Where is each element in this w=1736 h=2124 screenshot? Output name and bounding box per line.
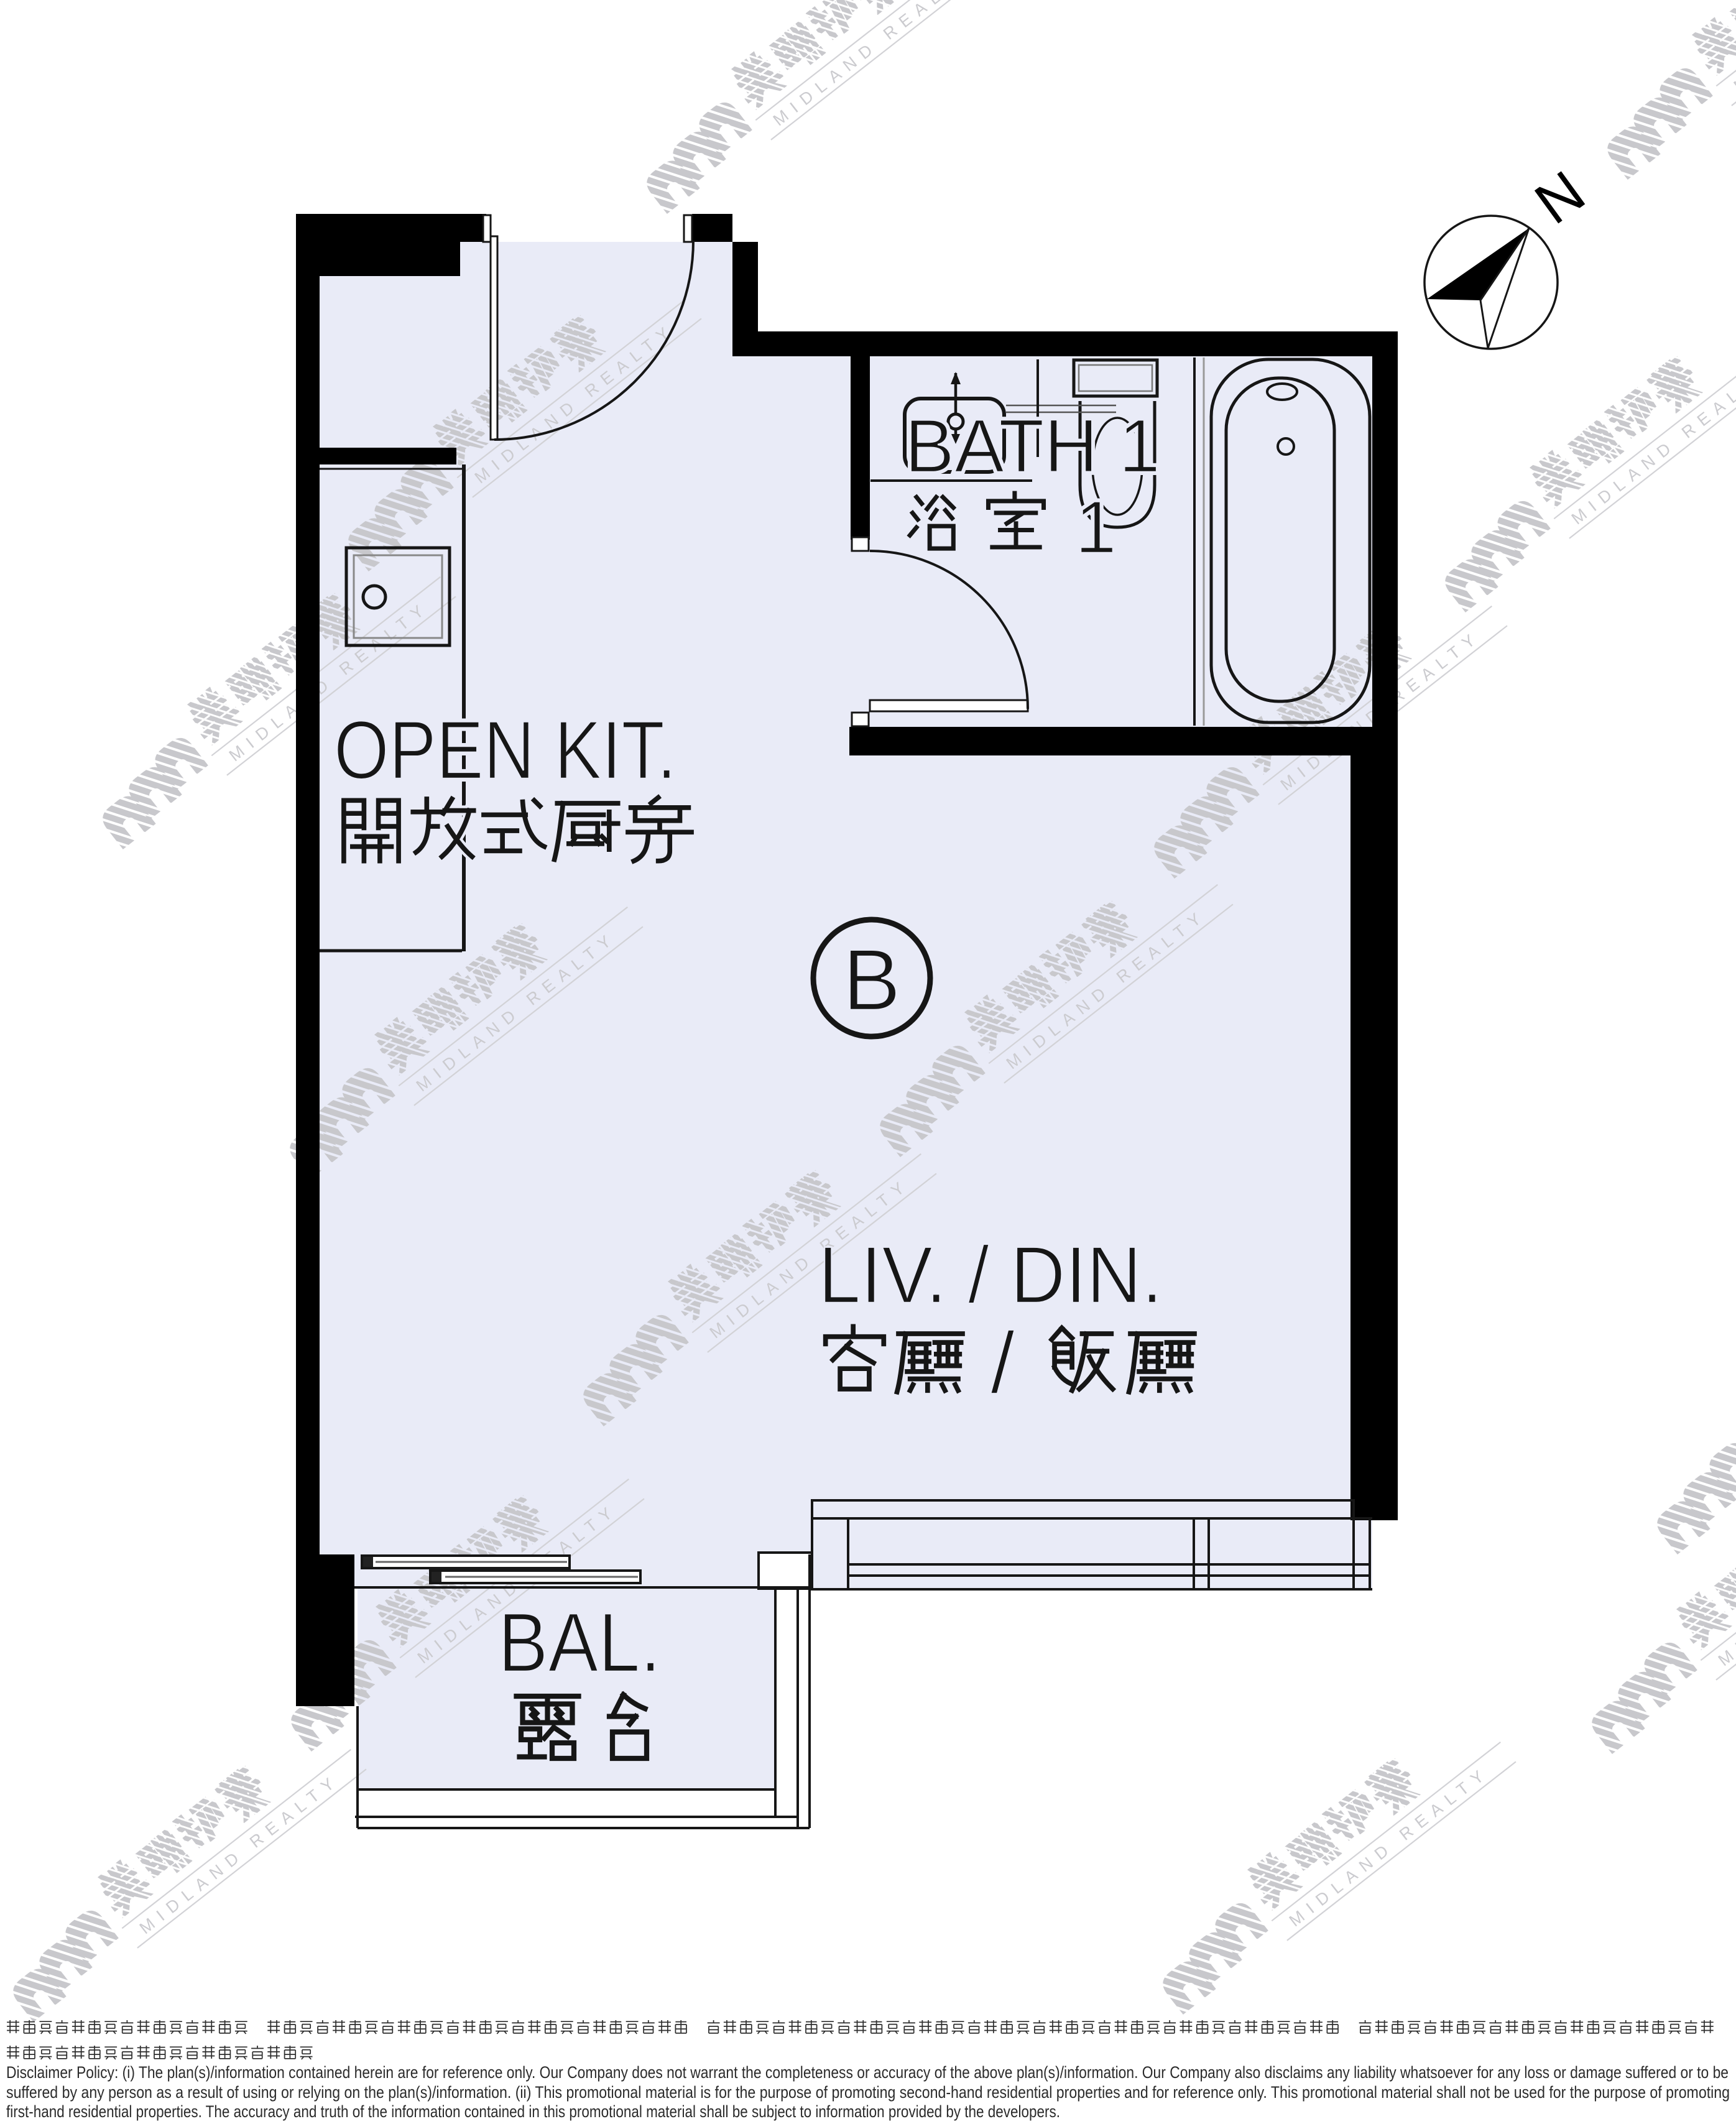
- svg-text:/: /: [990, 1314, 1015, 1411]
- svg-text:suffered by any person as a re: suffered by any person as a result of us…: [6, 2083, 1730, 2102]
- svg-text:1: 1: [1075, 486, 1117, 569]
- svg-text:Disclaimer Policy: (i) The pla: Disclaimer Policy: (i) The plan(s)/infor…: [6, 2063, 1729, 2082]
- svg-text:OPEN KIT.: OPEN KIT.: [334, 704, 676, 796]
- svg-text:N: N: [1523, 159, 1597, 237]
- svg-text:first-hand residential propert: first-hand residential properties. The a…: [6, 2102, 1060, 2121]
- svg-text:B: B: [843, 931, 900, 1028]
- svg-text:BATH 1: BATH 1: [905, 404, 1160, 488]
- svg-text:LIV. / DIN.: LIV. / DIN.: [818, 1229, 1163, 1320]
- svg-text:BAL.: BAL.: [498, 1595, 661, 1689]
